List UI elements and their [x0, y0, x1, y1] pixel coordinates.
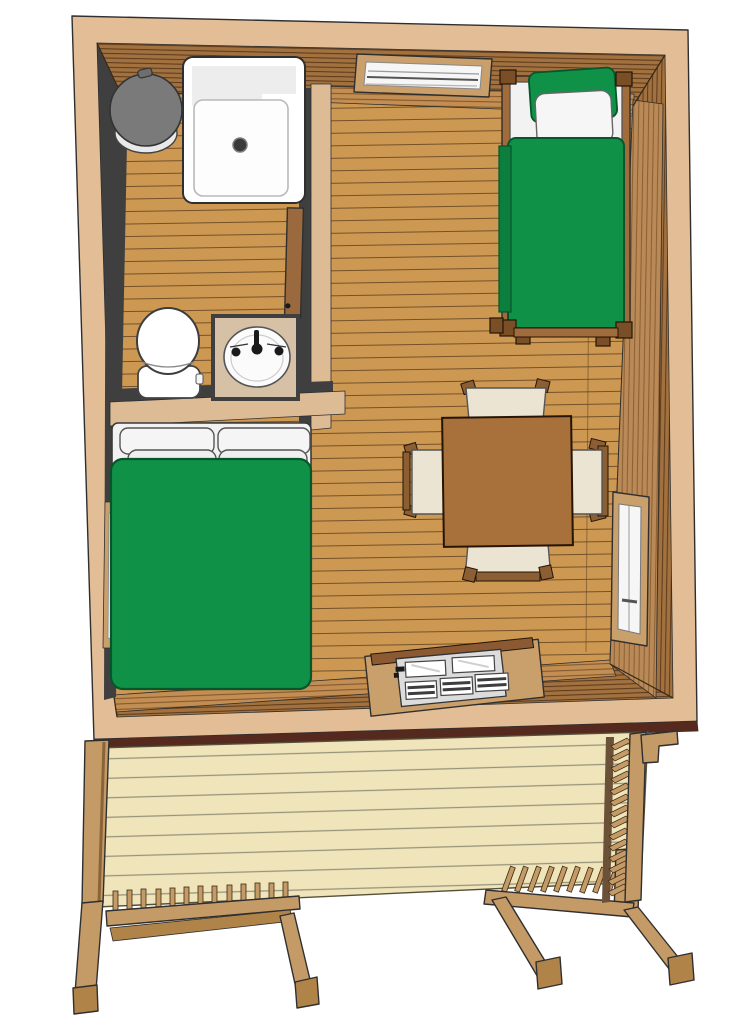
double-bed-duvet — [111, 459, 311, 689]
single-bed-foot-rail — [514, 328, 618, 337]
floor-plan-canvas — [0, 0, 734, 1024]
deck — [73, 731, 694, 1014]
chair-west — [403, 443, 445, 518]
right-wall-window — [611, 492, 649, 646]
shower-drain — [233, 138, 247, 152]
single-bed — [490, 67, 632, 346]
vanity-counter — [213, 316, 298, 399]
single-bed-duvet — [508, 138, 624, 328]
bathroom-wall-vertical-top — [311, 84, 331, 430]
top-wall-window — [354, 54, 492, 97]
left-railing-foot — [295, 977, 319, 1008]
floor-plan-svg — [0, 0, 734, 1024]
toilet — [137, 308, 203, 398]
double-bed — [111, 423, 311, 689]
single-bed-duvet-side — [499, 146, 511, 312]
chair-south — [462, 544, 553, 582]
deck-left-post — [73, 740, 109, 1014]
shower-pan — [183, 57, 305, 203]
deck-floor — [96, 732, 648, 907]
dining-table — [442, 416, 573, 547]
chair-east — [570, 438, 608, 521]
deck-corner-bracket — [641, 731, 678, 763]
bathroom-door — [285, 208, 304, 318]
